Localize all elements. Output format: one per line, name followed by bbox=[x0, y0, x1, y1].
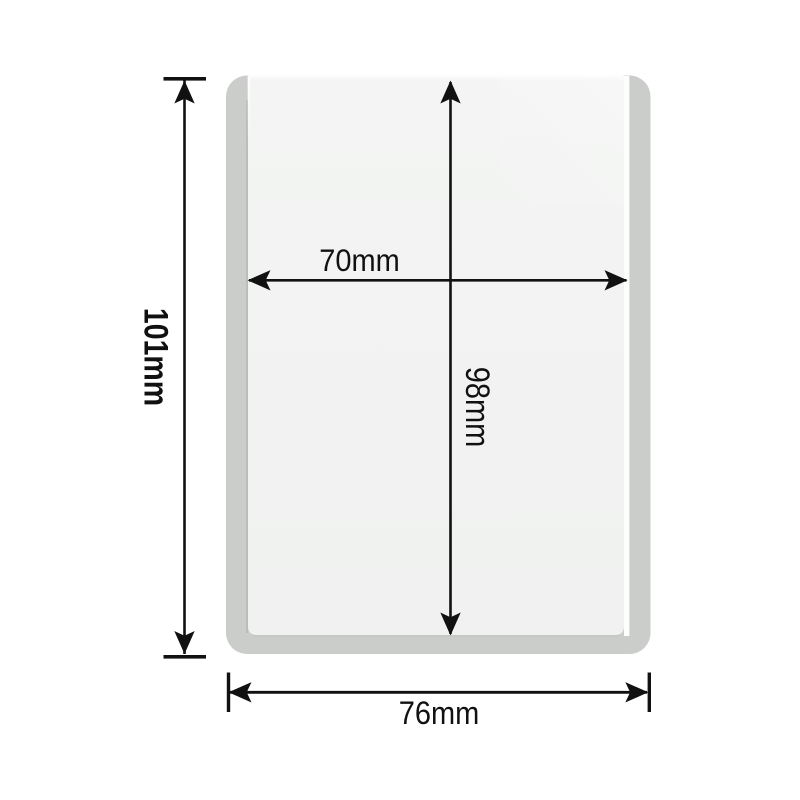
svg-text:70mm: 70mm bbox=[319, 243, 400, 279]
svg-text:98mm: 98mm bbox=[458, 367, 497, 448]
svg-text:76mm: 76mm bbox=[399, 694, 480, 731]
svg-text:101mm: 101mm bbox=[137, 308, 175, 406]
